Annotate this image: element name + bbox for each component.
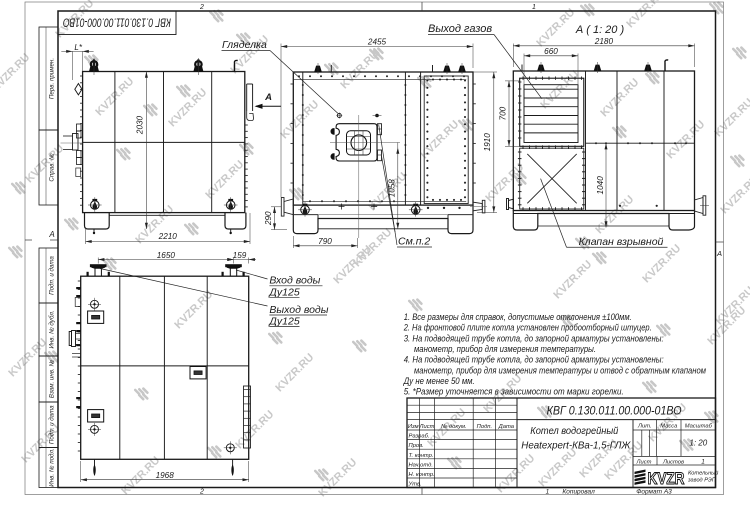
svg-text:Лист: Лист bbox=[419, 424, 435, 430]
svg-text:Подп.: Подп. bbox=[477, 424, 492, 430]
svg-text:манометр, прибор для измерения: манометр, прибор для измерения температу… bbox=[414, 344, 596, 354]
svg-text:1968: 1968 bbox=[156, 471, 175, 480]
svg-text:Формат А3: Формат А3 bbox=[636, 488, 672, 495]
svg-text:2. На фронтовой плите котла ус: 2. На фронтовой плите котла установлен п… bbox=[403, 323, 652, 333]
svg-text:2455: 2455 bbox=[367, 37, 387, 46]
svg-text:А: А bbox=[264, 92, 272, 103]
svg-text:Ду125: Ду125 bbox=[268, 286, 299, 298]
svg-text:2: 2 bbox=[199, 4, 204, 11]
svg-text:Подп. и дата: Подп. и дата bbox=[49, 256, 56, 295]
svg-text:1. Все размеры для справок, до: 1. Все размеры для справок, допустимые о… bbox=[404, 312, 632, 322]
svg-text:Н. контр.: Н. контр. bbox=[409, 472, 435, 478]
svg-text:Разраб.: Разраб. bbox=[409, 434, 430, 440]
svg-text:700: 700 bbox=[498, 106, 507, 120]
svg-text:Выход газов: Выход газов bbox=[428, 23, 492, 35]
svg-text:1058: 1058 bbox=[388, 179, 397, 198]
svg-text:2030: 2030 bbox=[136, 115, 145, 135]
svg-text:Масса: Масса bbox=[660, 424, 678, 430]
svg-text:1650: 1650 bbox=[157, 251, 176, 260]
svg-text:1: 1 bbox=[546, 488, 550, 495]
svg-text:Изм: Изм bbox=[408, 424, 419, 430]
svg-text:КВГ 0.130.011.00.000-01ВО: КВГ 0.130.011.00.000-01ВО bbox=[63, 15, 171, 29]
svg-text:А: А bbox=[716, 249, 722, 258]
svg-text:Копировал: Копировал bbox=[562, 488, 595, 495]
svg-text:790: 790 bbox=[318, 237, 332, 246]
svg-text:Ду125: Ду125 bbox=[268, 315, 299, 327]
svg-text:Инв. № дубл.: Инв. № дубл. bbox=[49, 310, 56, 348]
svg-text:Котел водогрейный: Котел водогрейный bbox=[530, 426, 618, 437]
svg-text:3. На подводящей трубе котла,: 3. На подводящей трубе котла, до запорно… bbox=[404, 333, 664, 343]
svg-text:2180: 2180 bbox=[594, 37, 614, 46]
svg-text:Нач.отд.: Нач.отд. bbox=[409, 462, 433, 468]
svg-text:№ докум.: № докум. bbox=[441, 424, 467, 430]
svg-text:Котельный: Котельный bbox=[688, 470, 718, 477]
svg-text:Вход воды: Вход воды bbox=[269, 275, 320, 287]
svg-text:Взам. инв. №: Взам. инв. № bbox=[49, 360, 56, 399]
svg-text:Клапан взрывной: Клапан взрывной bbox=[579, 236, 664, 248]
svg-text:1: 1 bbox=[532, 4, 536, 11]
svg-text:L*: L* bbox=[74, 43, 82, 52]
svg-text:Лит.: Лит. bbox=[637, 424, 652, 430]
svg-text:Масштаб: Масштаб bbox=[685, 424, 713, 430]
svg-text:Лист: Лист bbox=[636, 459, 652, 465]
svg-text:А ( 1: 20 ): А ( 1: 20 ) bbox=[575, 24, 625, 36]
svg-text:Перв. примен.: Перв. примен. bbox=[49, 58, 56, 99]
svg-text:660: 660 bbox=[544, 47, 558, 56]
svg-text:Подп. и дата: Подп. и дата bbox=[49, 405, 56, 444]
svg-text:Утв.: Утв. bbox=[408, 482, 422, 488]
svg-text:Пров.: Пров. bbox=[409, 443, 424, 449]
svg-text:Листов: Листов bbox=[662, 459, 684, 465]
svg-text:Инв. № подл.: Инв. № подл. bbox=[49, 448, 56, 486]
svg-text:2: 2 bbox=[199, 489, 204, 496]
svg-text:159: 159 bbox=[233, 251, 247, 260]
svg-text:KVZR: KVZR bbox=[648, 470, 685, 488]
svg-text:См.п.2: См.п.2 bbox=[398, 236, 430, 248]
svg-text:завод РЭП: завод РЭП bbox=[687, 478, 717, 484]
svg-text:А: А bbox=[48, 230, 54, 239]
svg-text:1910: 1910 bbox=[483, 133, 492, 152]
svg-text:Гляделка: Гляделка bbox=[222, 39, 267, 51]
svg-text:Т. контр.: Т. контр. bbox=[409, 453, 434, 459]
svg-text:1: 1 bbox=[701, 458, 705, 465]
svg-text:4. На подводящей трубе котла,: 4. На подводящей трубе котла, до запорно… bbox=[404, 355, 664, 365]
svg-text:Справ. №: Справ. № bbox=[49, 153, 56, 181]
svg-text:2210: 2210 bbox=[158, 232, 178, 241]
svg-text:КВГ 0.130.011.00.000-01ВО: КВГ 0.130.011.00.000-01ВО bbox=[547, 404, 682, 418]
svg-text:Heatexpert-КВа-1,5-ГЛЖ: Heatexpert-КВа-1,5-ГЛЖ bbox=[521, 441, 631, 452]
svg-text:Дата: Дата bbox=[498, 424, 515, 430]
svg-text:5. *Размер уточняется в зависи: 5. *Размер уточняется в зависимости от м… bbox=[404, 387, 624, 397]
svg-text:Выход воды: Выход воды bbox=[269, 304, 328, 316]
svg-text:манометр, прибор для измерения: манометр, прибор для измерения температу… bbox=[414, 365, 706, 375]
svg-text:290: 290 bbox=[264, 211, 273, 226]
svg-text:Ду не менее 50 мм.: Ду не менее 50 мм. bbox=[403, 376, 475, 386]
svg-text:1: 20: 1: 20 bbox=[689, 439, 707, 448]
svg-text:1040: 1040 bbox=[596, 176, 605, 195]
